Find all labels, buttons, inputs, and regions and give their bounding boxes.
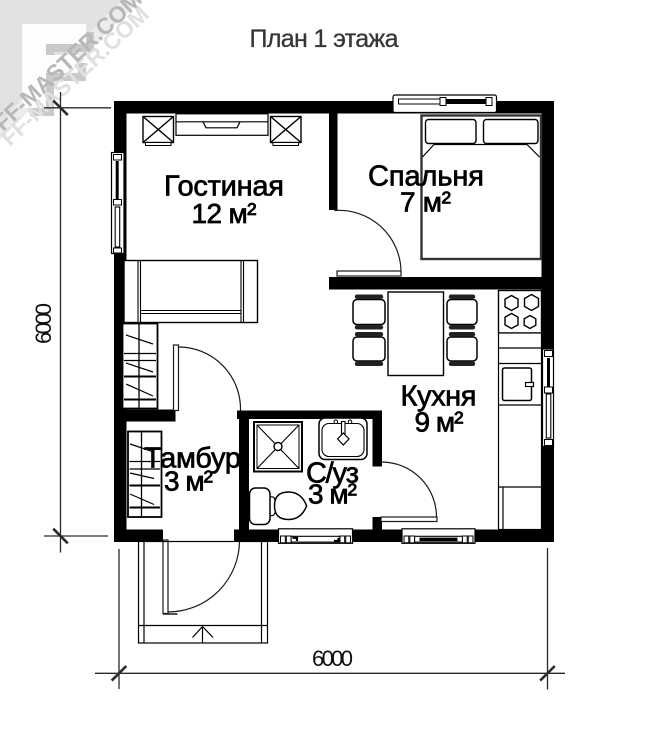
svg-text:7 м²: 7 м² bbox=[400, 187, 451, 218]
svg-text:9 м²: 9 м² bbox=[415, 407, 464, 438]
svg-text:12 м²: 12 м² bbox=[192, 198, 257, 229]
svg-text:6000: 6000 bbox=[31, 303, 56, 344]
svg-text:3 м²: 3 м² bbox=[308, 479, 357, 510]
svg-text:6000: 6000 bbox=[312, 646, 353, 671]
svg-text:План 1 этажа: План 1 этажа bbox=[250, 25, 399, 53]
svg-text:3 м²: 3 м² bbox=[164, 466, 213, 497]
